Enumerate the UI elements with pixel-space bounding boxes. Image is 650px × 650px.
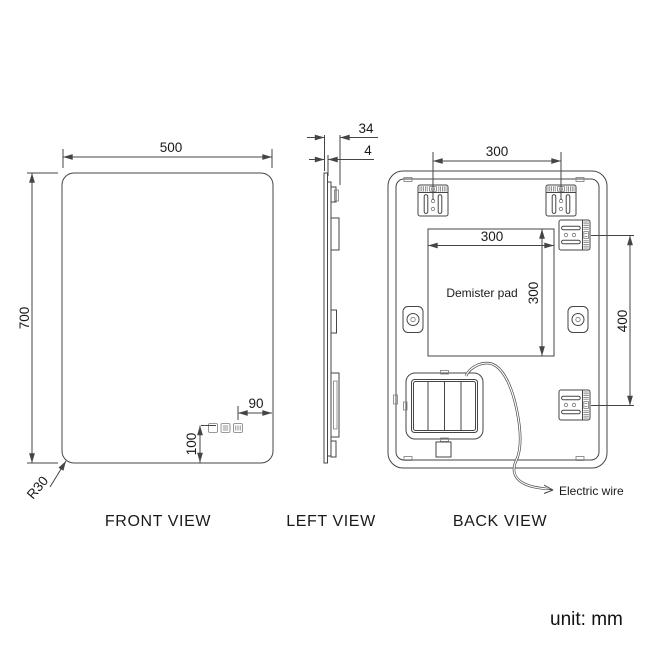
back-view: 300 Demister pad 300 300 400 <box>388 144 634 530</box>
profile-protrusions <box>331 187 339 457</box>
electric-wire-label: Electric wire <box>559 484 624 498</box>
demister-width-value: 300 <box>481 229 504 244</box>
electric-wire <box>466 363 553 493</box>
bracket-spacing-value: 300 <box>486 144 509 159</box>
cable-entry-port <box>436 442 451 457</box>
screw-boss-right <box>568 307 588 333</box>
front-width-value: 500 <box>160 140 183 155</box>
corner-radius-value: R30 <box>24 473 51 502</box>
bracket-spacing-dimension: 300 <box>433 144 561 200</box>
demister-height-value: 300 <box>526 282 541 305</box>
technical-drawing-canvas: 500 700 R30 90 <box>0 0 650 650</box>
buttons-bottom-offset-value: 100 <box>184 433 199 456</box>
screw-boss-left <box>403 307 423 333</box>
left-view-label: LEFT VIEW <box>286 513 376 530</box>
hanging-bracket-side-lower <box>559 390 590 420</box>
front-buttons-right-offset-dimension: 90 <box>238 396 272 420</box>
demister-width-dimension: 300 <box>428 229 554 246</box>
left-view: 34 4 LEFT VIEW <box>286 121 378 530</box>
glass-thickness-value: 4 <box>364 143 372 158</box>
front-height-value: 700 <box>17 307 32 330</box>
bracket-vertical-spacing-value: 400 <box>615 310 630 333</box>
front-control-buttons <box>209 424 243 433</box>
unit-note: unit: mm <box>550 609 623 630</box>
front-view: 500 700 R30 90 <box>17 140 273 530</box>
depth-value: 34 <box>358 121 374 136</box>
back-inner-frame <box>396 179 599 460</box>
demister-pad-label: Demister pad <box>446 286 517 300</box>
front-view-label: FRONT VIEW <box>105 513 211 530</box>
hanging-bracket-side-upper <box>559 220 590 250</box>
front-height-dimension: 700 <box>17 173 58 463</box>
drawing-sheet: 500 700 R30 90 <box>0 0 650 650</box>
buttons-right-offset-value: 90 <box>248 396 263 411</box>
front-width-dimension: 500 <box>63 140 272 168</box>
back-view-label: BACK VIEW <box>453 513 548 530</box>
demister-height-dimension: 300 <box>526 229 542 356</box>
touch-button-icon <box>209 424 218 433</box>
bracket-vertical-spacing-dimension: 400 <box>591 236 634 406</box>
front-corner-radius-callout: R30 <box>24 461 66 502</box>
junction-box <box>404 371 484 458</box>
left-glass-thickness-dimension: 4 <box>309 143 374 176</box>
front-buttons-bottom-offset-dimension: 100 <box>184 426 216 463</box>
frame-corner-marks <box>394 178 585 461</box>
glass-profile <box>324 173 328 463</box>
back-frame-profile <box>328 182 332 456</box>
mirror-outline-front <box>62 173 273 463</box>
